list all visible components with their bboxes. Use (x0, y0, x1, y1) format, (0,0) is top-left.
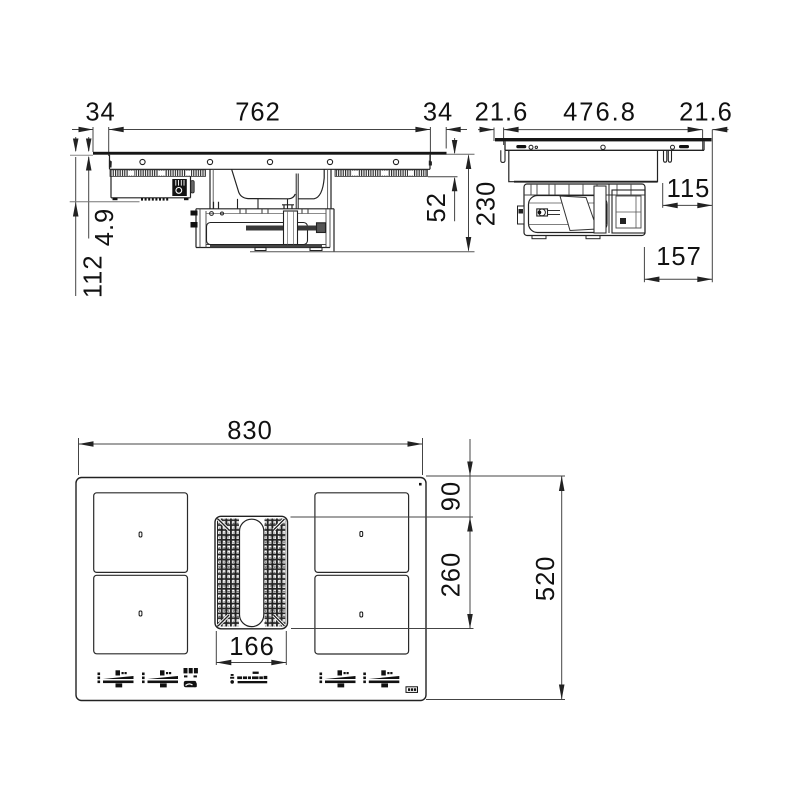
svg-text:520: 520 (532, 556, 560, 602)
svg-text:52: 52 (423, 192, 451, 222)
svg-text:157: 157 (656, 243, 702, 271)
svg-text:34: 34 (423, 98, 453, 126)
svg-text:4.9: 4.9 (91, 208, 119, 246)
svg-text:21.6: 21.6 (475, 98, 529, 126)
svg-text:21.6: 21.6 (679, 98, 733, 126)
svg-text:762: 762 (235, 98, 281, 126)
svg-text:90: 90 (438, 481, 466, 511)
svg-text:166: 166 (229, 633, 275, 661)
svg-text:115: 115 (667, 175, 711, 203)
svg-text:112: 112 (80, 254, 108, 298)
svg-text:476.8: 476.8 (563, 98, 637, 126)
svg-text:34: 34 (85, 98, 115, 126)
svg-text:230: 230 (473, 181, 501, 227)
svg-text:260: 260 (438, 552, 466, 598)
svg-text:830: 830 (227, 417, 273, 445)
